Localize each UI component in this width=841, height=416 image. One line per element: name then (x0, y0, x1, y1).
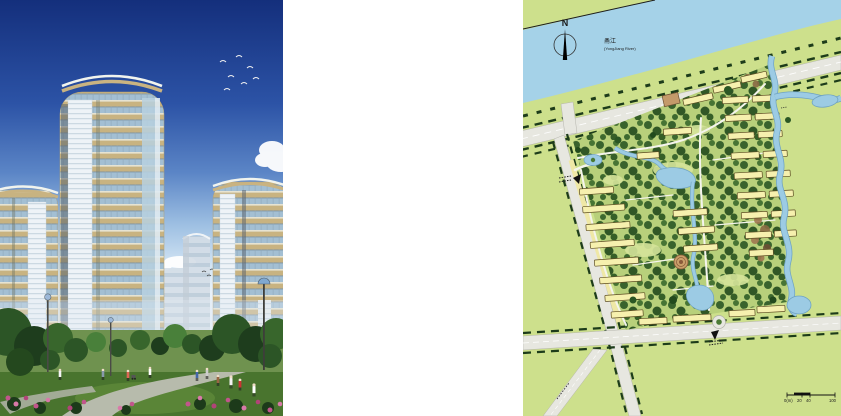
scale-forty: 40 (806, 398, 811, 403)
rendering-photo (0, 0, 283, 416)
site-plan-map: N 甬江 (YongJiang River) 0(m) 20 40 100 (523, 0, 841, 416)
spiral-plaza (674, 255, 688, 269)
site-plan-canvas: N 甬江 (YongJiang River) 0(m) 20 40 100 (523, 0, 841, 416)
rendering-photo-canvas (0, 0, 283, 416)
scale-zero: 0(m) (784, 398, 793, 403)
scale-hundred: 100 (829, 398, 837, 403)
south-pond (787, 296, 811, 314)
north-label: N (562, 18, 569, 28)
river-name-zh: 甬江 (604, 37, 616, 45)
river-name-en: (YongJiang River) (604, 46, 636, 51)
scale-twenty: 20 (797, 398, 802, 403)
roundabout (713, 316, 726, 329)
pond-island (591, 158, 595, 162)
